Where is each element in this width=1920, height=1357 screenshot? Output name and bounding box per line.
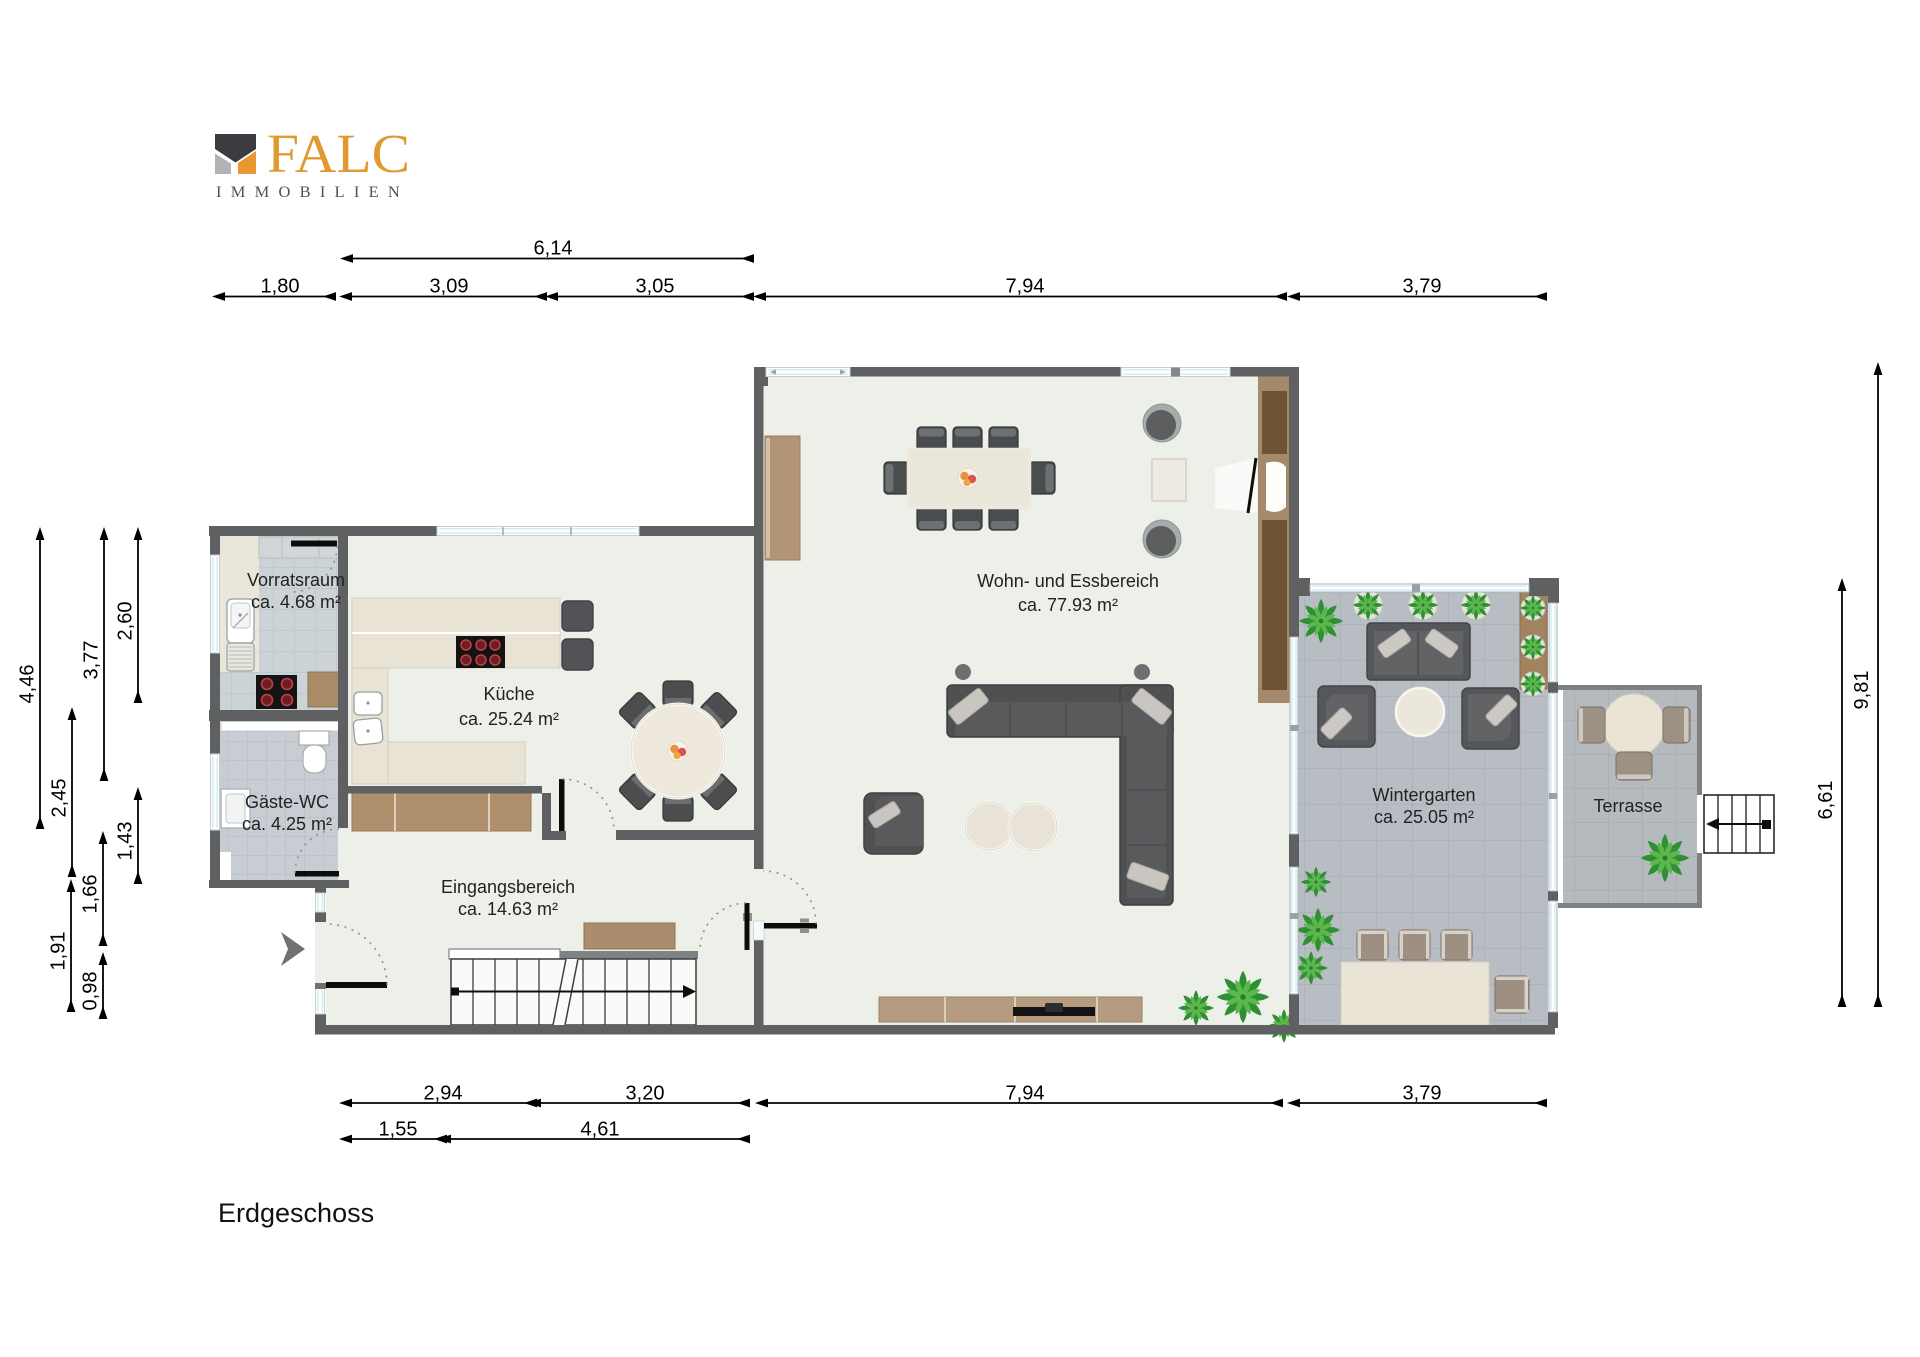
svg-text:Wintergarten: Wintergarten	[1372, 785, 1475, 805]
svg-text:4,46: 4,46	[17, 665, 39, 704]
svg-text:4,61: 4,61	[581, 1119, 620, 1141]
svg-text:7,94: 7,94	[1006, 276, 1045, 298]
svg-text:7,94: 7,94	[1006, 1083, 1045, 1105]
svg-text:6,61: 6,61	[1815, 781, 1837, 820]
svg-text:Terrasse: Terrasse	[1593, 796, 1662, 816]
svg-text:1,80: 1,80	[261, 276, 300, 298]
svg-text:Vorratsraum: Vorratsraum	[247, 570, 345, 590]
svg-text:ca. 4.25 m²: ca. 4.25 m²	[242, 814, 332, 834]
svg-text:1,91: 1,91	[48, 932, 70, 971]
svg-text:3,79: 3,79	[1403, 276, 1442, 298]
svg-text:0,98: 0,98	[80, 972, 102, 1011]
svg-text:ca. 14.63 m²: ca. 14.63 m²	[458, 899, 558, 919]
svg-text:9,81: 9,81	[1851, 671, 1873, 710]
svg-text:3,20: 3,20	[626, 1083, 665, 1105]
svg-text:Erdgeschoss: Erdgeschoss	[218, 1198, 374, 1228]
svg-text:1,43: 1,43	[115, 822, 137, 861]
svg-text:6,14: 6,14	[534, 238, 573, 260]
svg-text:Küche: Küche	[483, 684, 534, 704]
svg-text:ca. 4.68 m²: ca. 4.68 m²	[251, 592, 341, 612]
svg-text:ca. 77.93 m²: ca. 77.93 m²	[1018, 595, 1118, 615]
svg-text:3,05: 3,05	[636, 276, 675, 298]
svg-text:2,60: 2,60	[115, 602, 137, 641]
svg-text:3,09: 3,09	[430, 276, 469, 298]
svg-text:Eingangsbereich: Eingangsbereich	[441, 877, 575, 897]
svg-text:3,77: 3,77	[81, 641, 103, 680]
svg-text:ca. 25.05 m²: ca. 25.05 m²	[1374, 807, 1474, 827]
svg-text:1,55: 1,55	[379, 1119, 418, 1141]
svg-text:ca. 25.24 m²: ca. 25.24 m²	[459, 709, 559, 729]
svg-text:FALC: FALC	[267, 123, 410, 184]
svg-text:3,79: 3,79	[1403, 1083, 1442, 1105]
svg-text:1,66: 1,66	[80, 875, 102, 914]
svg-text:IMMOBILIEN: IMMOBILIEN	[216, 184, 409, 201]
svg-text:Wohn- und Essbereich: Wohn- und Essbereich	[977, 571, 1159, 591]
svg-text:2,94: 2,94	[424, 1083, 463, 1105]
svg-text:2,45: 2,45	[49, 779, 71, 818]
svg-text:Gäste-WC: Gäste-WC	[245, 792, 329, 812]
